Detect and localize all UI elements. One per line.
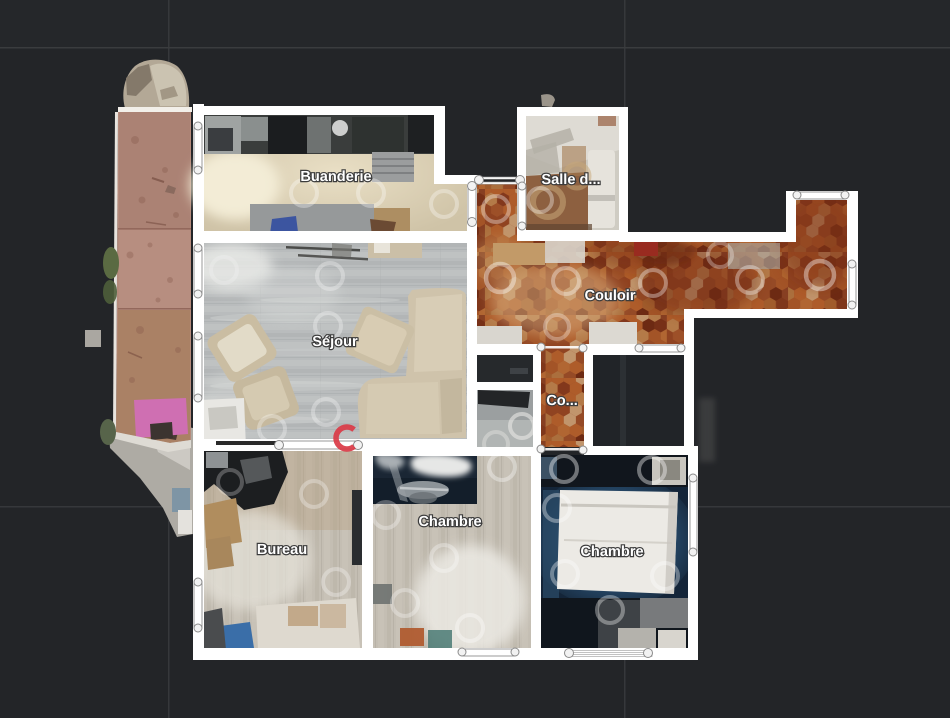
svg-text:Co...: Co... <box>546 393 578 409</box>
svg-text:Bureau: Bureau <box>257 542 307 558</box>
svg-text:Séjour: Séjour <box>312 334 358 350</box>
svg-text:Chambre: Chambre <box>418 514 481 530</box>
svg-text:Buanderie: Buanderie <box>300 169 371 185</box>
svg-text:Couloir: Couloir <box>584 288 635 304</box>
svg-text:Chambre: Chambre <box>580 544 643 560</box>
svg-text:Salle d...: Salle d... <box>541 172 600 188</box>
